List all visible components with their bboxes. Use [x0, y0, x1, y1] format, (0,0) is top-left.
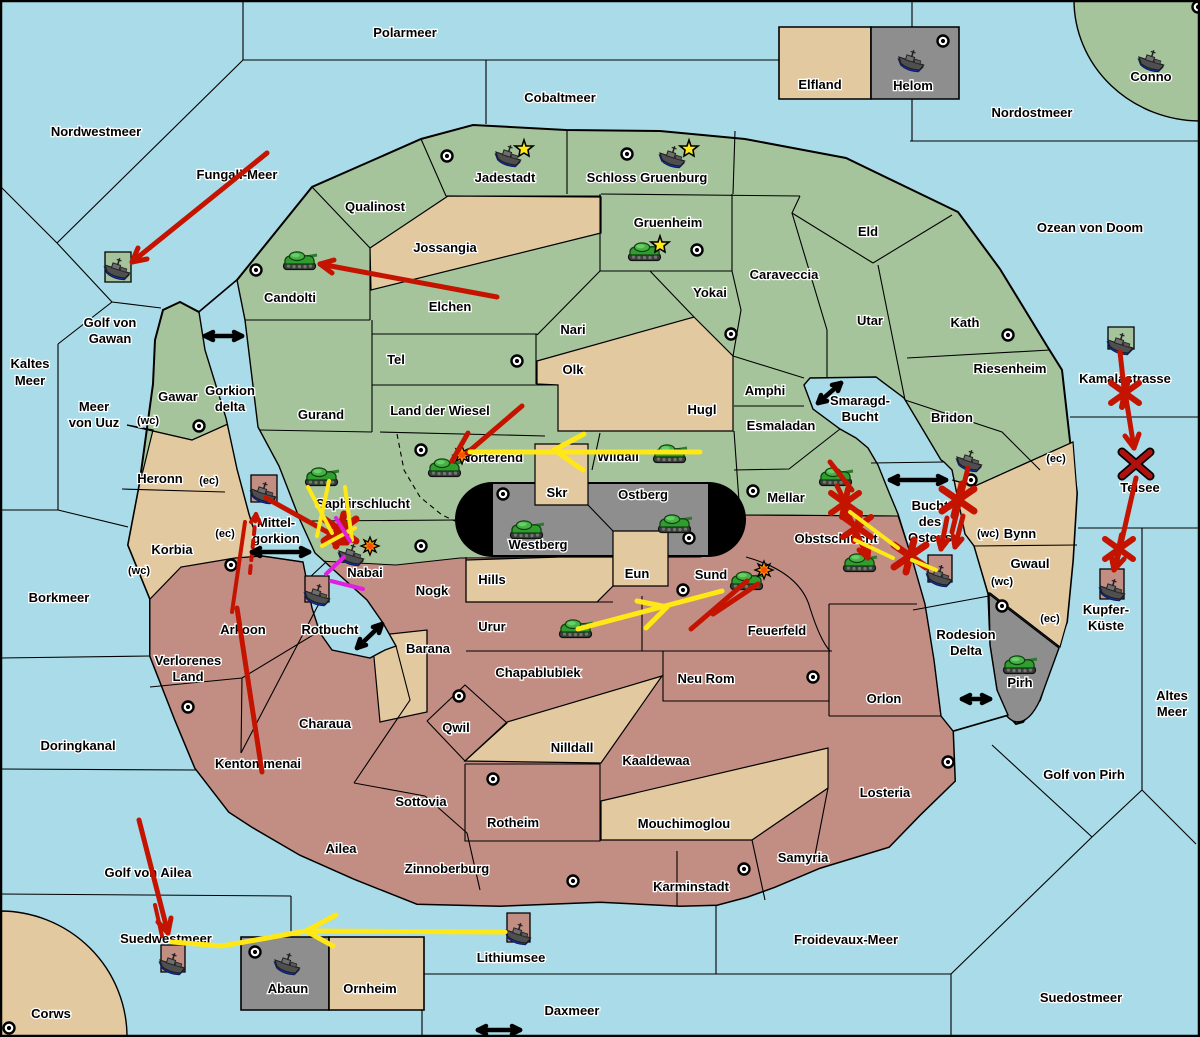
- svg-text:Gruenheim: Gruenheim: [634, 215, 703, 230]
- svg-text:Küste: Küste: [1088, 618, 1124, 633]
- svg-text:Samyria: Samyria: [778, 850, 829, 865]
- svg-text:Doringkanal: Doringkanal: [40, 738, 115, 753]
- svg-text:Orlon: Orlon: [867, 691, 902, 706]
- svg-text:Karminstadt: Karminstadt: [653, 879, 730, 894]
- svg-text:Saphirschlucht: Saphirschlucht: [316, 496, 411, 511]
- svg-text:Conno: Conno: [1130, 69, 1171, 84]
- svg-text:Qwil: Qwil: [442, 720, 469, 735]
- svg-text:Ailea: Ailea: [325, 841, 357, 856]
- svg-text:Borkmeer: Borkmeer: [29, 590, 90, 605]
- svg-text:Corws: Corws: [31, 1006, 71, 1021]
- svg-text:Olk: Olk: [563, 362, 585, 377]
- svg-text:Meer: Meer: [15, 373, 45, 388]
- svg-text:Kaaldewaa: Kaaldewaa: [622, 753, 690, 768]
- svg-text:Nogk: Nogk: [416, 583, 449, 598]
- svg-text:Barana: Barana: [406, 641, 451, 656]
- svg-text:Nordostmeer: Nordostmeer: [992, 105, 1073, 120]
- svg-text:Kath: Kath: [951, 315, 980, 330]
- svg-text:Kaltes: Kaltes: [10, 356, 49, 371]
- svg-text:Jossangia: Jossangia: [413, 240, 477, 255]
- svg-text:Rotbucht: Rotbucht: [301, 622, 359, 637]
- svg-text:Mellar: Mellar: [767, 490, 805, 505]
- svg-text:Delta: Delta: [950, 643, 983, 658]
- svg-text:Bynn: Bynn: [1004, 526, 1037, 541]
- svg-text:Amphi: Amphi: [745, 383, 785, 398]
- svg-text:Nabai: Nabai: [347, 565, 382, 580]
- svg-text:Froidevaux-Meer: Froidevaux-Meer: [794, 932, 898, 947]
- svg-text:Golf von Pirh: Golf von Pirh: [1043, 767, 1125, 782]
- svg-text:Urur: Urur: [478, 619, 505, 634]
- svg-text:Jadestadt: Jadestadt: [475, 170, 536, 185]
- svg-text:(wc): (wc): [137, 415, 159, 427]
- svg-text:Pirh: Pirh: [1007, 675, 1032, 690]
- svg-text:Bridon: Bridon: [931, 410, 973, 425]
- svg-text:Helom: Helom: [893, 78, 933, 93]
- svg-text:Sund: Sund: [695, 567, 728, 582]
- svg-text:Suedostmeer: Suedostmeer: [1040, 990, 1122, 1005]
- svg-text:Elfland: Elfland: [798, 77, 841, 92]
- svg-text:Caraveccia: Caraveccia: [750, 267, 819, 282]
- svg-text:Candolti: Candolti: [264, 290, 316, 305]
- svg-text:Hills: Hills: [478, 572, 505, 587]
- svg-text:gorkion: gorkion: [252, 531, 300, 546]
- svg-text:Sottovia: Sottovia: [395, 794, 447, 809]
- svg-text:Polarmeer: Polarmeer: [373, 25, 437, 40]
- svg-text:Land der Wiesel: Land der Wiesel: [390, 403, 490, 418]
- svg-text:Schloss Gruenburg: Schloss Gruenburg: [587, 170, 708, 185]
- svg-text:Skr: Skr: [547, 485, 568, 500]
- svg-text:Ornheim: Ornheim: [343, 981, 396, 996]
- svg-text:Nordwestmeer: Nordwestmeer: [51, 124, 141, 139]
- svg-text:Meer: Meer: [1157, 704, 1187, 719]
- svg-text:Ostberg: Ostberg: [618, 487, 668, 502]
- svg-text:(wc): (wc): [991, 576, 1013, 588]
- svg-text:Kupfer-: Kupfer-: [1083, 602, 1129, 617]
- svg-text:Elchen: Elchen: [429, 299, 472, 314]
- svg-text:Mittel-: Mittel-: [257, 515, 295, 530]
- svg-text:Rodesion: Rodesion: [936, 627, 995, 642]
- svg-text:Gurand: Gurand: [298, 407, 344, 422]
- svg-text:des: des: [919, 514, 941, 529]
- svg-text:Golf von Ailea: Golf von Ailea: [105, 865, 193, 880]
- svg-text:Cobaltmeer: Cobaltmeer: [524, 90, 596, 105]
- svg-text:Qualinost: Qualinost: [345, 199, 406, 214]
- svg-text:Rotheim: Rotheim: [487, 815, 539, 830]
- svg-text:Lithiumsee: Lithiumsee: [477, 950, 546, 965]
- svg-text:Nilldall: Nilldall: [551, 740, 594, 755]
- svg-text:Daxmeer: Daxmeer: [545, 1003, 600, 1018]
- svg-text:Gwaul: Gwaul: [1010, 556, 1049, 571]
- svg-text:(wc): (wc): [977, 528, 999, 540]
- svg-text:Losteria: Losteria: [860, 785, 911, 800]
- svg-text:Tel: Tel: [387, 352, 405, 367]
- svg-text:Eld: Eld: [858, 224, 878, 239]
- svg-text:Westberg: Westberg: [509, 537, 568, 552]
- svg-text:Gawar: Gawar: [158, 389, 198, 404]
- svg-text:Smaragd-: Smaragd-: [830, 393, 890, 408]
- svg-text:(ec): (ec): [1040, 613, 1060, 625]
- svg-text:(wc): (wc): [128, 565, 150, 577]
- svg-text:Mouchimoglou: Mouchimoglou: [638, 816, 730, 831]
- svg-text:Golf von: Golf von: [84, 315, 137, 330]
- svg-text:Gorkion: Gorkion: [205, 383, 255, 398]
- svg-text:Feuerfeld: Feuerfeld: [748, 623, 807, 638]
- svg-text:von Uuz: von Uuz: [69, 415, 120, 430]
- svg-text:Yokai: Yokai: [693, 285, 727, 300]
- svg-text:Land: Land: [172, 669, 203, 684]
- svg-text:(ec): (ec): [199, 475, 219, 487]
- svg-text:Hugl: Hugl: [688, 402, 717, 417]
- svg-text:Heronn: Heronn: [137, 471, 183, 486]
- svg-text:Gawan: Gawan: [89, 331, 132, 346]
- svg-text:Verlorenes: Verlorenes: [155, 653, 222, 668]
- svg-text:(ec): (ec): [215, 528, 235, 540]
- svg-text:Zinnoberburg: Zinnoberburg: [405, 861, 490, 876]
- svg-text:Charaua: Charaua: [299, 716, 352, 731]
- svg-text:Abaun: Abaun: [268, 981, 309, 996]
- svg-text:Eun: Eun: [625, 566, 650, 581]
- svg-text:Utar: Utar: [857, 313, 883, 328]
- svg-text:(ec): (ec): [1046, 453, 1066, 465]
- svg-text:Ozean von Doom: Ozean von Doom: [1037, 220, 1143, 235]
- svg-text:Chapablublek: Chapablublek: [495, 665, 581, 680]
- svg-text:Riesenheim: Riesenheim: [974, 361, 1047, 376]
- svg-text:Korbia: Korbia: [151, 542, 193, 557]
- svg-text:delta: delta: [215, 399, 246, 414]
- svg-text:Bucht: Bucht: [842, 409, 880, 424]
- svg-text:Altes: Altes: [1156, 688, 1188, 703]
- svg-text:Meer: Meer: [79, 399, 109, 414]
- svg-text:Neu Rom: Neu Rom: [677, 671, 734, 686]
- svg-text:Esmaladan: Esmaladan: [747, 418, 816, 433]
- svg-text:Teisee: Teisee: [1120, 480, 1160, 495]
- svg-text:Nari: Nari: [560, 322, 585, 337]
